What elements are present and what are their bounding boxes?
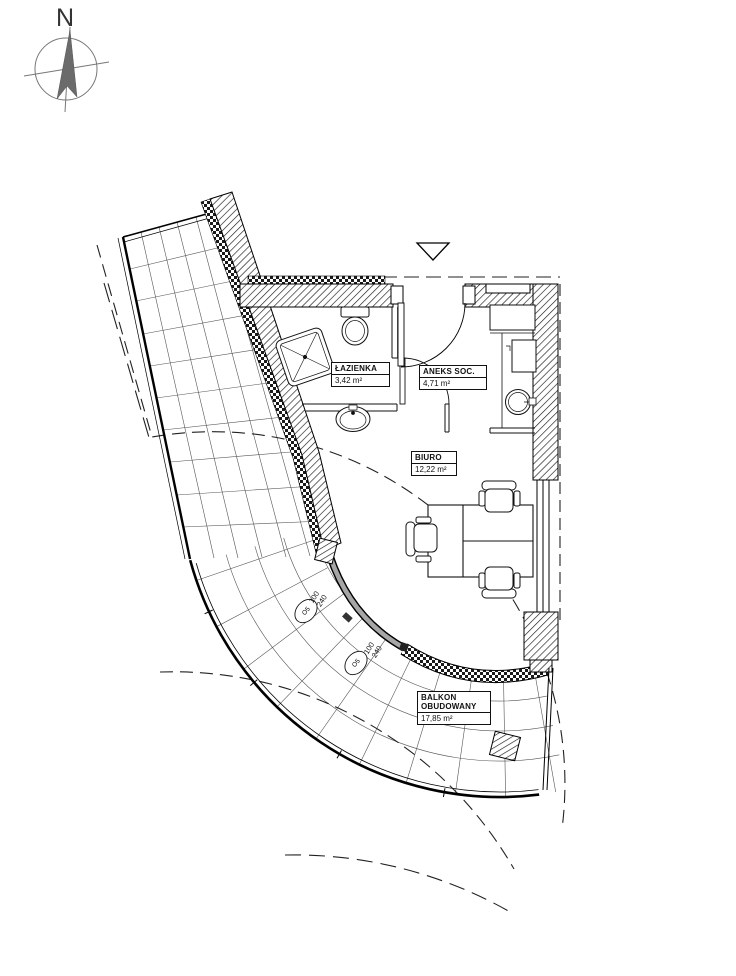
room-name-biuro: BIURO bbox=[412, 452, 456, 464]
room-area-lazienka: 3,42 m² bbox=[332, 375, 389, 386]
office-east-window bbox=[533, 480, 557, 612]
office-desk bbox=[428, 505, 533, 577]
room-name-lazienka: ŁAZIENKA bbox=[332, 363, 389, 375]
entrance-door bbox=[391, 286, 475, 367]
toilet bbox=[341, 307, 369, 345]
room-area-aneks: 4,71 m² bbox=[420, 378, 486, 389]
bathroom-sink bbox=[336, 405, 370, 432]
glazing-handle bbox=[342, 612, 353, 622]
room-area-biuro: 12,22 m² bbox=[412, 464, 456, 475]
room-name-aneks: ANEKS SOC. bbox=[420, 366, 486, 378]
room-name-balkon: BALKON OBUDOWANY bbox=[418, 692, 490, 713]
kitchen-sink bbox=[506, 390, 537, 415]
room-label-balkon: BALKON OBUDOWANY 17,85 m² bbox=[417, 691, 491, 725]
room-label-biuro: BIURO 12,22 m² bbox=[411, 451, 457, 476]
floor-plan-drawing: O5 100 240 O5 100 240 bbox=[0, 0, 736, 976]
north-arrow bbox=[57, 30, 77, 99]
room-label-aneks: ANEKS SOC. 4,71 m² bbox=[419, 365, 487, 390]
north-compass bbox=[24, 27, 109, 112]
room-label-lazienka: ŁAZIENKA 3,42 m² bbox=[331, 362, 390, 387]
compass-north-label: N bbox=[56, 4, 74, 33]
entrance-marker-triangle bbox=[417, 243, 449, 260]
curved-glazing bbox=[330, 556, 404, 648]
room-area-balkon: 17,85 m² bbox=[418, 713, 490, 724]
floor-plan-page: O5 100 240 O5 100 240 N ŁAZIENKA 3,42 m²… bbox=[0, 0, 736, 976]
